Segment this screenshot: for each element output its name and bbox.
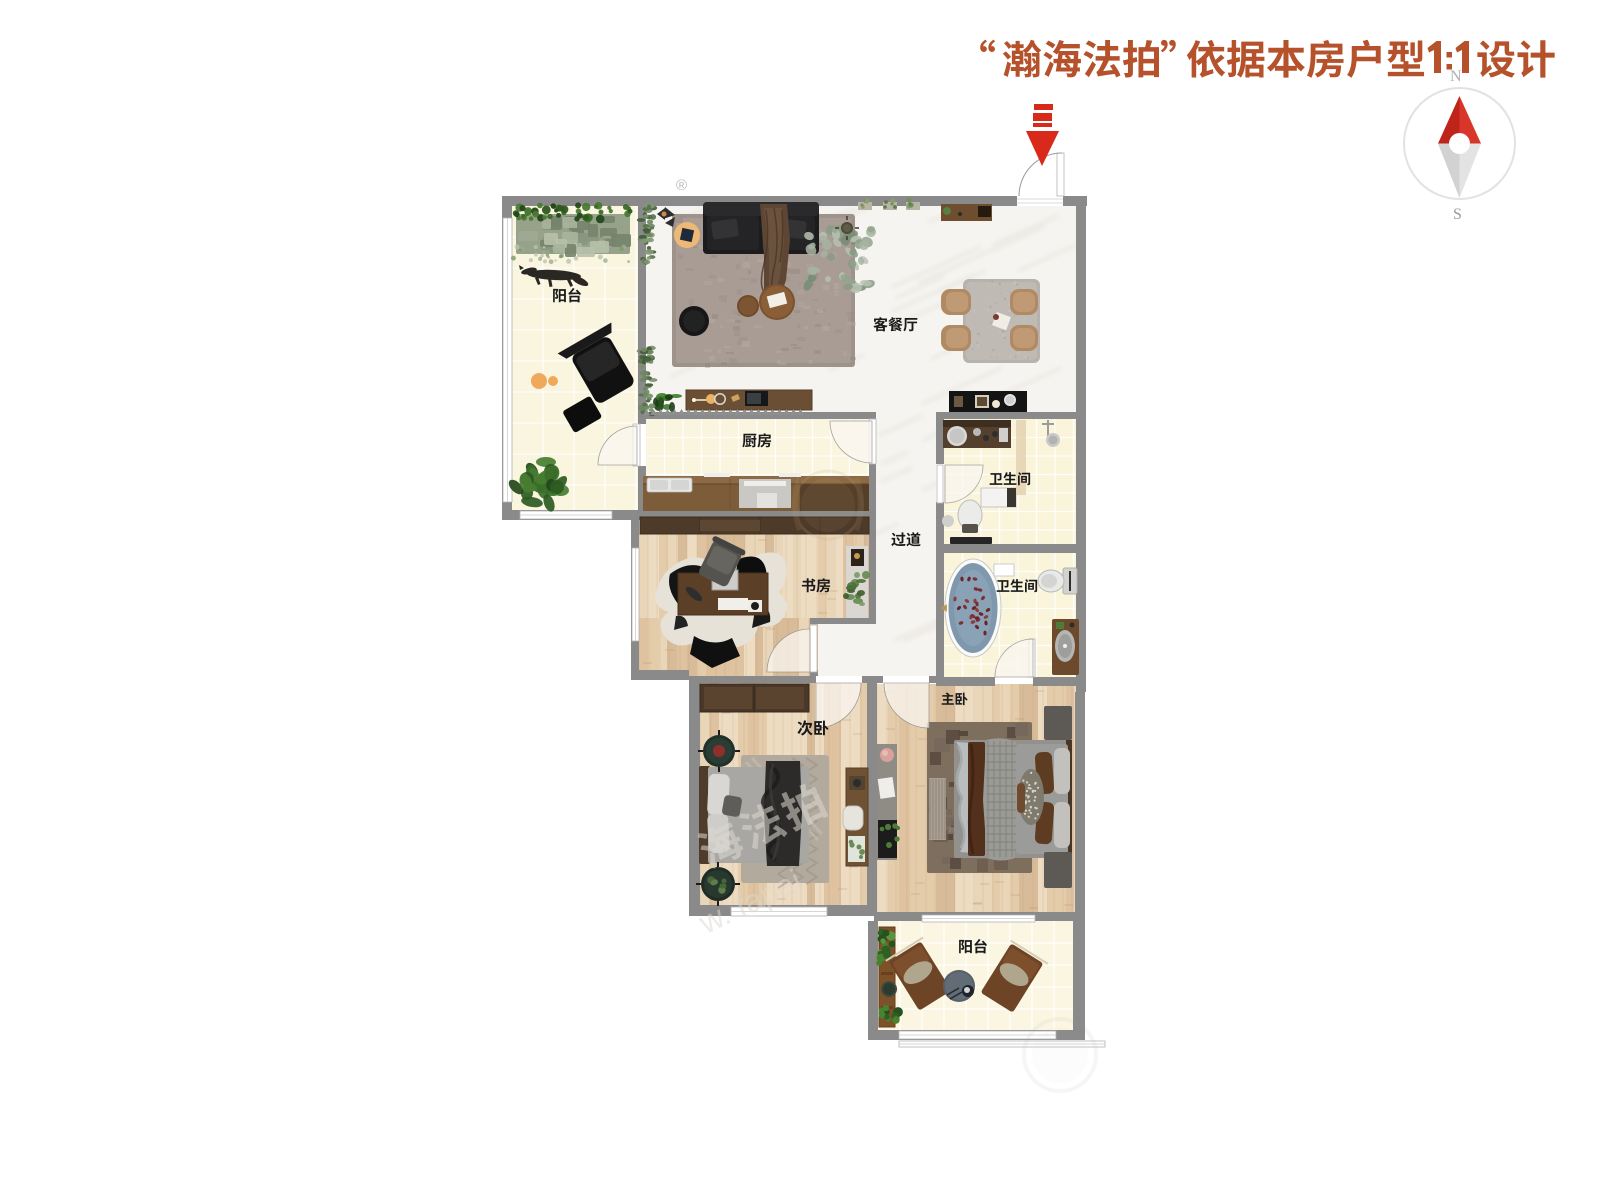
svg-text:N: N: [1450, 68, 1462, 85]
svg-text:®: ®: [676, 177, 687, 194]
svg-text:S: S: [1453, 206, 1462, 223]
